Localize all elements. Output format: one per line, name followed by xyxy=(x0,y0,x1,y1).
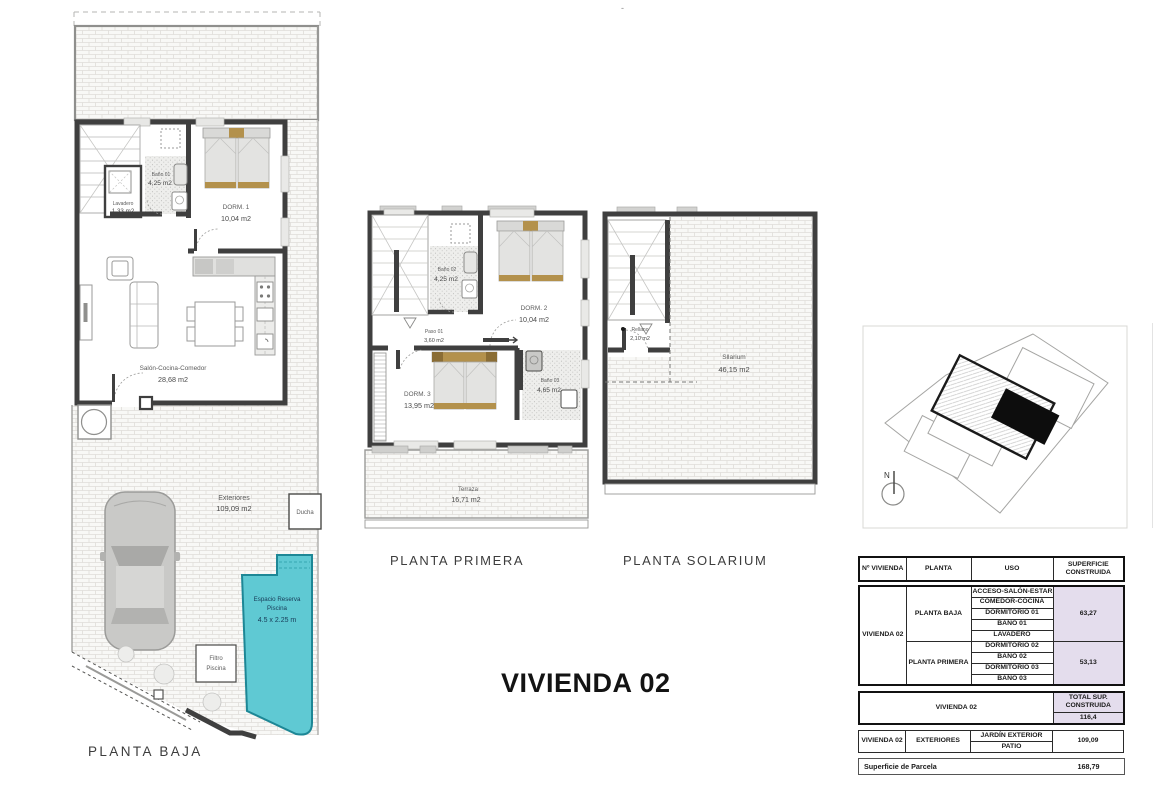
stair-rail xyxy=(394,250,399,312)
cell-total-vivienda: VIVIENDA 02 xyxy=(859,692,1053,724)
planta-baja-drawing: Lavadero 1,33 m2 Baño 01 4,25 m2 DORM. 1… xyxy=(66,6,328,768)
svg-text:13,95 m2: 13,95 m2 xyxy=(404,401,434,410)
chair xyxy=(235,307,243,321)
stairs xyxy=(372,215,428,328)
ducha-box: Ducha xyxy=(289,494,321,529)
rellano-label: Rellano xyxy=(632,327,649,333)
kitchen-sink-icon xyxy=(257,308,273,321)
svg-text:N: N xyxy=(884,471,890,480)
planta-solarium-drawing: Rellano 2,10 m2 Sllarium 46,15 m2 xyxy=(600,200,825,575)
mirror xyxy=(100,552,106,561)
svg-text:4,25 m2: 4,25 m2 xyxy=(434,276,458,283)
sink-icon xyxy=(526,351,542,371)
cell-uso: DORMITORIO 01 xyxy=(971,608,1053,619)
parcela-row: Superficie de Parcela 168,79 xyxy=(858,758,1125,775)
salon-label: Salón-Cocina-Comedor xyxy=(140,365,208,372)
chair xyxy=(235,327,243,341)
cell-ext-superficie: 109,09 xyxy=(1053,731,1124,753)
dorm2-label: DORM. 2 xyxy=(521,305,548,312)
stair-rail xyxy=(630,255,635,315)
car-icon xyxy=(100,492,180,650)
mirror xyxy=(174,552,180,561)
svg-text:28,68 m2: 28,68 m2 xyxy=(158,375,188,384)
sink-icon xyxy=(174,164,187,185)
parcel-boundary-dashed xyxy=(74,12,320,26)
svg-text:Ducha: Ducha xyxy=(296,510,314,516)
svg-text:4,65 m2: 4,65 m2 xyxy=(537,387,561,394)
cell-uso: ACCESO-SALÓN-ESTAR xyxy=(971,586,1053,597)
pillar xyxy=(140,397,152,409)
header-superficie: SUPERFICIE CONSTRUIDA xyxy=(1053,557,1124,581)
cell-planta-primera: PLANTA PRIMERA xyxy=(906,641,971,685)
washing-machine-icon xyxy=(451,224,470,243)
washing-machine-icon xyxy=(161,129,180,148)
bano03-room: Baño 03 4,65 m2 xyxy=(519,350,581,420)
parcela-value: 168,79 xyxy=(1053,762,1124,771)
table-exteriores: VIVIENDA 02 EXTERIORES JARDÍN EXTERIOR 1… xyxy=(858,730,1124,753)
page-title: VIVIENDA 02 xyxy=(501,668,671,699)
shrub-icon xyxy=(203,693,221,711)
tv-icon xyxy=(84,303,88,322)
eave-strip xyxy=(605,484,815,494)
dining-table xyxy=(195,302,235,346)
gate-handle xyxy=(154,690,163,699)
side-patio-strip xyxy=(287,120,318,405)
hob-icon xyxy=(257,282,273,302)
sheet-edge-line xyxy=(1152,323,1153,528)
shrub-icon xyxy=(154,664,174,684)
solarium-floor-lower xyxy=(608,357,670,479)
bano03-label: Baño 03 xyxy=(541,378,560,384)
cell-superficie-primera: 53,13 xyxy=(1053,641,1124,685)
door-leaf xyxy=(622,328,626,350)
eave-strip xyxy=(365,520,588,528)
stairs xyxy=(608,220,666,334)
paso-label: Paso 01 xyxy=(425,329,444,335)
cell-uso: BAÑO 03 xyxy=(971,674,1053,685)
door-leaf xyxy=(396,350,400,369)
toilet-icon xyxy=(172,192,187,210)
header-uso: USO xyxy=(971,557,1053,581)
filtro-box: Filtro Piscina xyxy=(196,645,236,682)
site-plan: N xyxy=(860,322,1130,532)
cell-total-value: 116,4 xyxy=(1053,712,1124,724)
page-mark: - xyxy=(621,3,624,13)
solarium-floor xyxy=(670,217,812,479)
cell-uso: BAÑO 01 xyxy=(971,619,1053,630)
cell-planta-baja: PLANTA BAJA xyxy=(906,586,971,641)
toilet-icon xyxy=(462,280,477,298)
svg-text:10,04 m2: 10,04 m2 xyxy=(221,214,251,223)
terraza-label: Terraza xyxy=(458,487,479,493)
planta-baja-title: PLANTA BAJA xyxy=(88,744,203,759)
solarium-label: Sllarium xyxy=(722,354,745,361)
pool-label-1: Espacio Reserva xyxy=(254,596,301,603)
pool-label-2: Piscina xyxy=(267,605,288,612)
sink-icon xyxy=(464,252,477,273)
table-body: VIVIENDA 02 PLANTA BAJA ACCESO-SALÓN-EST… xyxy=(858,585,1125,686)
planta-solarium-title: PLANTA SOLARIUM xyxy=(623,553,767,568)
exteriores-label: Exteriores xyxy=(218,495,250,502)
bano01-label: Baño 01 xyxy=(152,172,171,178)
svg-text:46,15 m2: 46,15 m2 xyxy=(718,365,749,374)
svg-text:3,60 m2: 3,60 m2 xyxy=(424,338,444,344)
pool: Espacio Reserva Piscina 4.5 x 2.25 m xyxy=(242,555,312,735)
header-n-vivienda: Nº VIVIENDA xyxy=(859,557,906,581)
cell-total-header: TOTAL SUP. CONSTRUIDA xyxy=(1053,692,1124,712)
chair xyxy=(187,307,195,321)
dorm1-label: DORM. 1 xyxy=(223,204,250,211)
table-total: VIVIENDA 02 TOTAL SUP. CONSTRUIDA 116,4 xyxy=(858,691,1125,725)
svg-text:2,10 m2: 2,10 m2 xyxy=(630,336,650,342)
pool-dims: 4.5 x 2.25 m xyxy=(258,617,297,624)
header-planta: PLANTA xyxy=(906,557,971,581)
shrub-icon xyxy=(118,646,134,662)
rear-patio xyxy=(75,26,318,120)
bano02-label: Baño 02 xyxy=(438,267,457,273)
cell-uso: DORMITORIO 03 xyxy=(971,663,1053,674)
lavadero-room: Lavadero 1,33 m2 xyxy=(105,166,141,217)
cell-uso: PATIO xyxy=(971,742,1053,753)
shower-icon xyxy=(561,390,577,408)
planta-primera-drawing: Baño 02 4,25 m2 DORM. 2 10,04 m2 Paso 01… xyxy=(358,198,593,578)
surface-table: Nº VIVIENDA PLANTA USO SUPERFICIE CONSTR… xyxy=(858,556,1128,775)
cell-uso: LAVADERO xyxy=(971,630,1053,641)
cell-uso: COMEDOR-COCINA xyxy=(971,597,1053,608)
lavadero-label: Lavadero xyxy=(113,201,134,207)
closet xyxy=(374,353,386,441)
patio-fixtures xyxy=(78,405,111,439)
cell-ext-vivienda: VIVIENDA 02 xyxy=(859,731,906,753)
svg-text:10,04 m2: 10,04 m2 xyxy=(519,315,549,324)
cell-uso: BAÑO 02 xyxy=(971,652,1053,663)
sofa xyxy=(130,282,158,348)
cell-vivienda: VIVIENDA 02 xyxy=(859,586,906,685)
svg-text:16,71 m2: 16,71 m2 xyxy=(451,497,480,504)
door-leaf xyxy=(194,229,197,251)
chair xyxy=(187,327,195,341)
parcela-label: Superficie de Parcela xyxy=(859,762,1053,771)
svg-text:109,09 m2: 109,09 m2 xyxy=(216,504,251,513)
svg-text:Filtro: Filtro xyxy=(209,656,223,662)
terraza: Terraza 16,71 m2 xyxy=(365,446,588,528)
svg-text:Piscina: Piscina xyxy=(206,666,226,672)
door-leaf xyxy=(519,350,523,390)
cell-uso: JARDÍN EXTERIOR xyxy=(971,731,1053,742)
planta-primera-title: PLANTA PRIMERA xyxy=(390,553,524,568)
svg-text:4,25 m2: 4,25 m2 xyxy=(148,180,172,187)
cell-ext-planta: EXTERIORES xyxy=(906,731,971,753)
entry-door-leaf xyxy=(112,374,115,402)
cell-superficie-baja: 63,27 xyxy=(1053,586,1124,641)
dishwasher-icon xyxy=(257,334,273,349)
table-header: Nº VIVIENDA PLANTA USO SUPERFICIE CONSTR… xyxy=(858,556,1125,582)
cell-uso: DORMITORIO 02 xyxy=(971,641,1053,652)
dorm3-label: DORM. 3 xyxy=(404,391,431,398)
